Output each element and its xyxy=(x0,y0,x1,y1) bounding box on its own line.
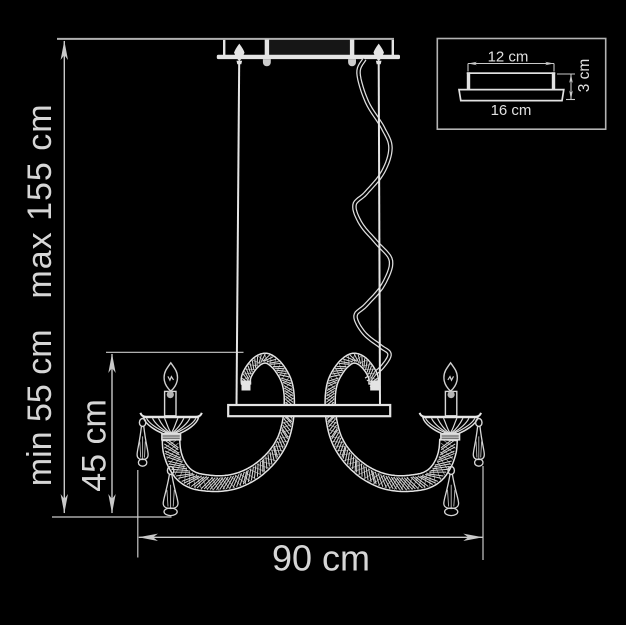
svg-text:max 155 cm: max 155 cm xyxy=(21,103,59,298)
svg-text:3 cm: 3 cm xyxy=(576,59,593,93)
svg-text:45 cm: 45 cm xyxy=(76,399,114,492)
svg-text:90 cm: 90 cm xyxy=(272,538,370,579)
svg-text:min 55 cm: min 55 cm xyxy=(21,329,59,486)
svg-text:16 cm: 16 cm xyxy=(491,102,532,119)
